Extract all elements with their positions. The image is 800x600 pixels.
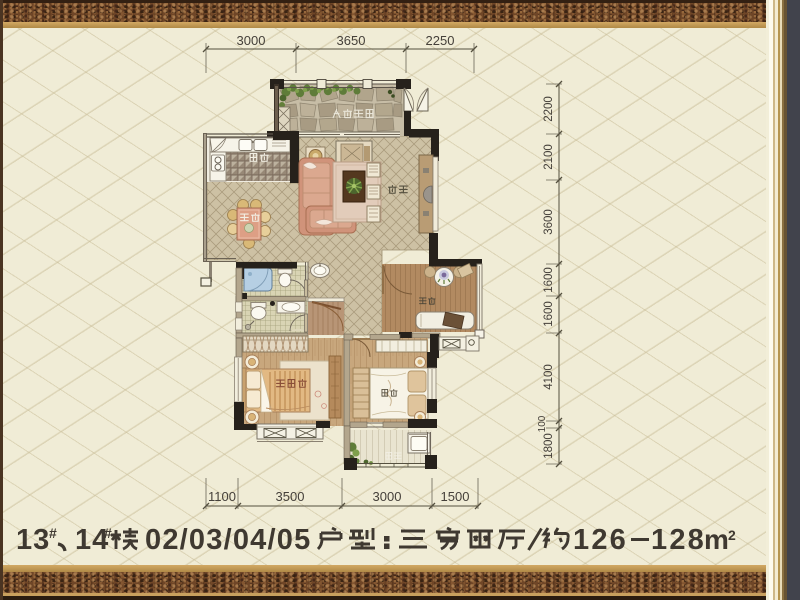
svg-text:#: # bbox=[49, 525, 57, 541]
svg-text:3000: 3000 bbox=[373, 489, 402, 504]
svg-text:1600: 1600 bbox=[543, 301, 555, 327]
svg-text:100: 100 bbox=[537, 415, 548, 432]
svg-text:2250: 2250 bbox=[426, 33, 455, 48]
svg-text:2: 2 bbox=[728, 527, 736, 543]
svg-text:2100: 2100 bbox=[543, 144, 555, 170]
svg-text:2200: 2200 bbox=[543, 96, 555, 122]
svg-text:3000: 3000 bbox=[237, 33, 266, 48]
svg-text:126: 126 bbox=[573, 524, 628, 556]
svg-text:128: 128 bbox=[651, 524, 706, 556]
svg-text:4100: 4100 bbox=[543, 364, 555, 390]
svg-text:1800: 1800 bbox=[543, 433, 555, 459]
svg-text:02/03/04/05: 02/03/04/05 bbox=[145, 524, 311, 556]
svg-text:3500: 3500 bbox=[276, 489, 305, 504]
svg-text:3600: 3600 bbox=[543, 209, 555, 235]
svg-text:m: m bbox=[704, 524, 729, 555]
svg-text:1500: 1500 bbox=[441, 489, 470, 504]
svg-text:1600: 1600 bbox=[543, 267, 555, 293]
svg-text:13: 13 bbox=[16, 524, 50, 556]
svg-text:1100: 1100 bbox=[208, 489, 236, 504]
svg-text:3650: 3650 bbox=[337, 33, 366, 48]
svg-text:#: # bbox=[104, 525, 112, 541]
